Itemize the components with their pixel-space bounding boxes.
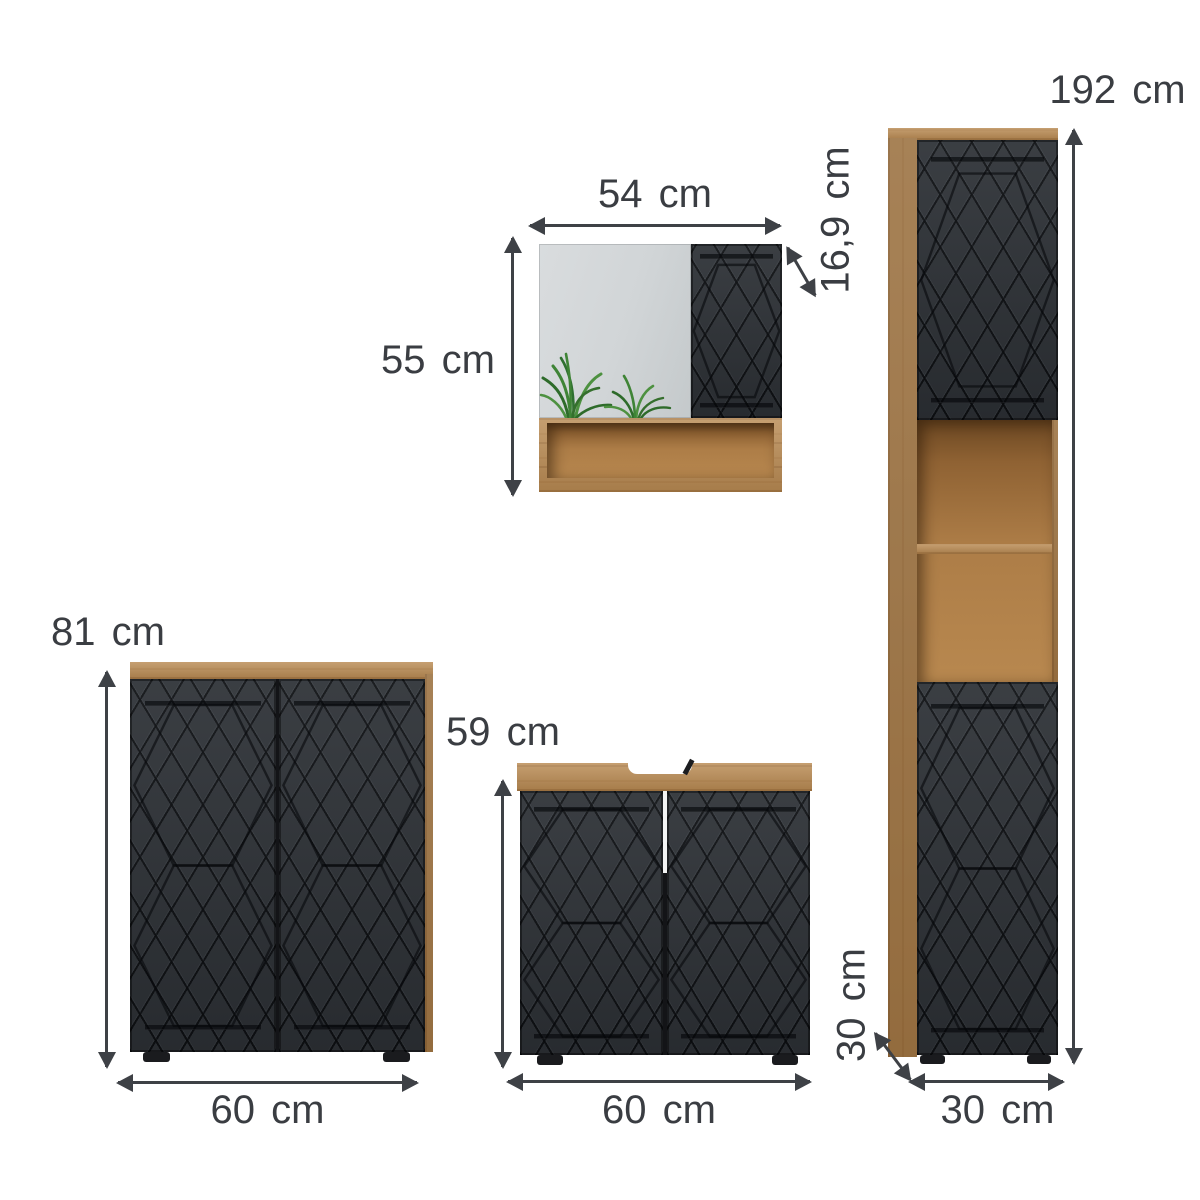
mirror-height-label: 55 cm: [358, 338, 518, 383]
cabinet-foot: [537, 1055, 563, 1065]
side-cabinet-top: [130, 662, 433, 679]
tall-cabinet-lower-door: [917, 682, 1058, 1055]
hexagon-relief: [917, 682, 1058, 1055]
cabinet-foot: [920, 1055, 945, 1064]
dimension-diagram: 54 cm 55 cm 16,9 cm 192 cm 30 cm 30 cm: [0, 0, 1200, 1200]
sink-height-label: 59 cm: [423, 710, 583, 755]
dim-arrow-sink-width: [508, 1080, 810, 1083]
cabinet-foot: [772, 1055, 798, 1065]
cabinet-foot: [143, 1052, 170, 1062]
hexagon-relief: [667, 791, 810, 1055]
sink-cabinet-counter: [517, 763, 812, 791]
side-cabinet: [130, 662, 433, 1062]
side-cabinet-doors: [130, 679, 425, 1052]
hexagon-relief: [917, 140, 1058, 420]
hexagon-relief: [520, 791, 663, 1055]
shelf-board: [917, 544, 1052, 554]
drain-pipe: [683, 759, 695, 775]
side-height-label: 81 cm: [28, 610, 188, 655]
mirror-glass: [539, 244, 691, 418]
tall-cabinet: [888, 128, 1058, 1064]
mirror-cabinet-shelf: [539, 418, 782, 492]
mirror-shelf-niche: [547, 423, 774, 478]
hexagon-relief: [279, 679, 425, 1052]
sink-cabinet-left-door: [520, 791, 663, 1055]
tall-height-label: 192 cm: [1035, 68, 1200, 113]
side-cabinet-left-door: [130, 679, 276, 1052]
hexagon-relief: [130, 679, 276, 1052]
tall-cabinet-open-shelves: [917, 420, 1052, 682]
cabinet-foot: [1027, 1055, 1051, 1064]
sink-cabinet-right-door: [667, 791, 810, 1055]
dim-arrow-side-height: [105, 672, 108, 1067]
dim-arrow-sink-height: [501, 781, 504, 1067]
dim-arrow-mirror-width: [530, 224, 780, 227]
cabinet-foot: [383, 1052, 410, 1062]
mirror-depth-label: 16,9 cm: [814, 146, 859, 293]
dim-arrow-mirror-depth: [786, 247, 816, 296]
mirror-width-label: 54 cm: [530, 172, 780, 217]
tall-width-label: 30 cm: [915, 1088, 1080, 1133]
door-gap-highlight: [663, 791, 667, 873]
sink-cabinet-doors: [520, 791, 810, 1055]
sink-cabinet: [517, 763, 812, 1065]
side-cabinet-right-door: [279, 679, 425, 1052]
mirror-cabinet: [539, 244, 782, 492]
tall-cabinet-upper-door: [917, 140, 1058, 420]
side-width-label: 60 cm: [118, 1088, 417, 1133]
mirror-cabinet-door: [691, 244, 782, 418]
tall-depth-label: 30 cm: [830, 948, 875, 1062]
tall-cabinet-right-wall: [1052, 420, 1058, 682]
hexagon-relief: [691, 244, 782, 418]
dim-arrow-tall-height: [1072, 130, 1075, 1063]
sink-width-label: 60 cm: [508, 1088, 810, 1133]
dim-arrow-side-width: [118, 1081, 417, 1084]
dim-arrow-tall-width: [910, 1080, 1063, 1083]
plant-reflection: [539, 348, 691, 418]
tall-cabinet-side: [888, 138, 917, 1057]
